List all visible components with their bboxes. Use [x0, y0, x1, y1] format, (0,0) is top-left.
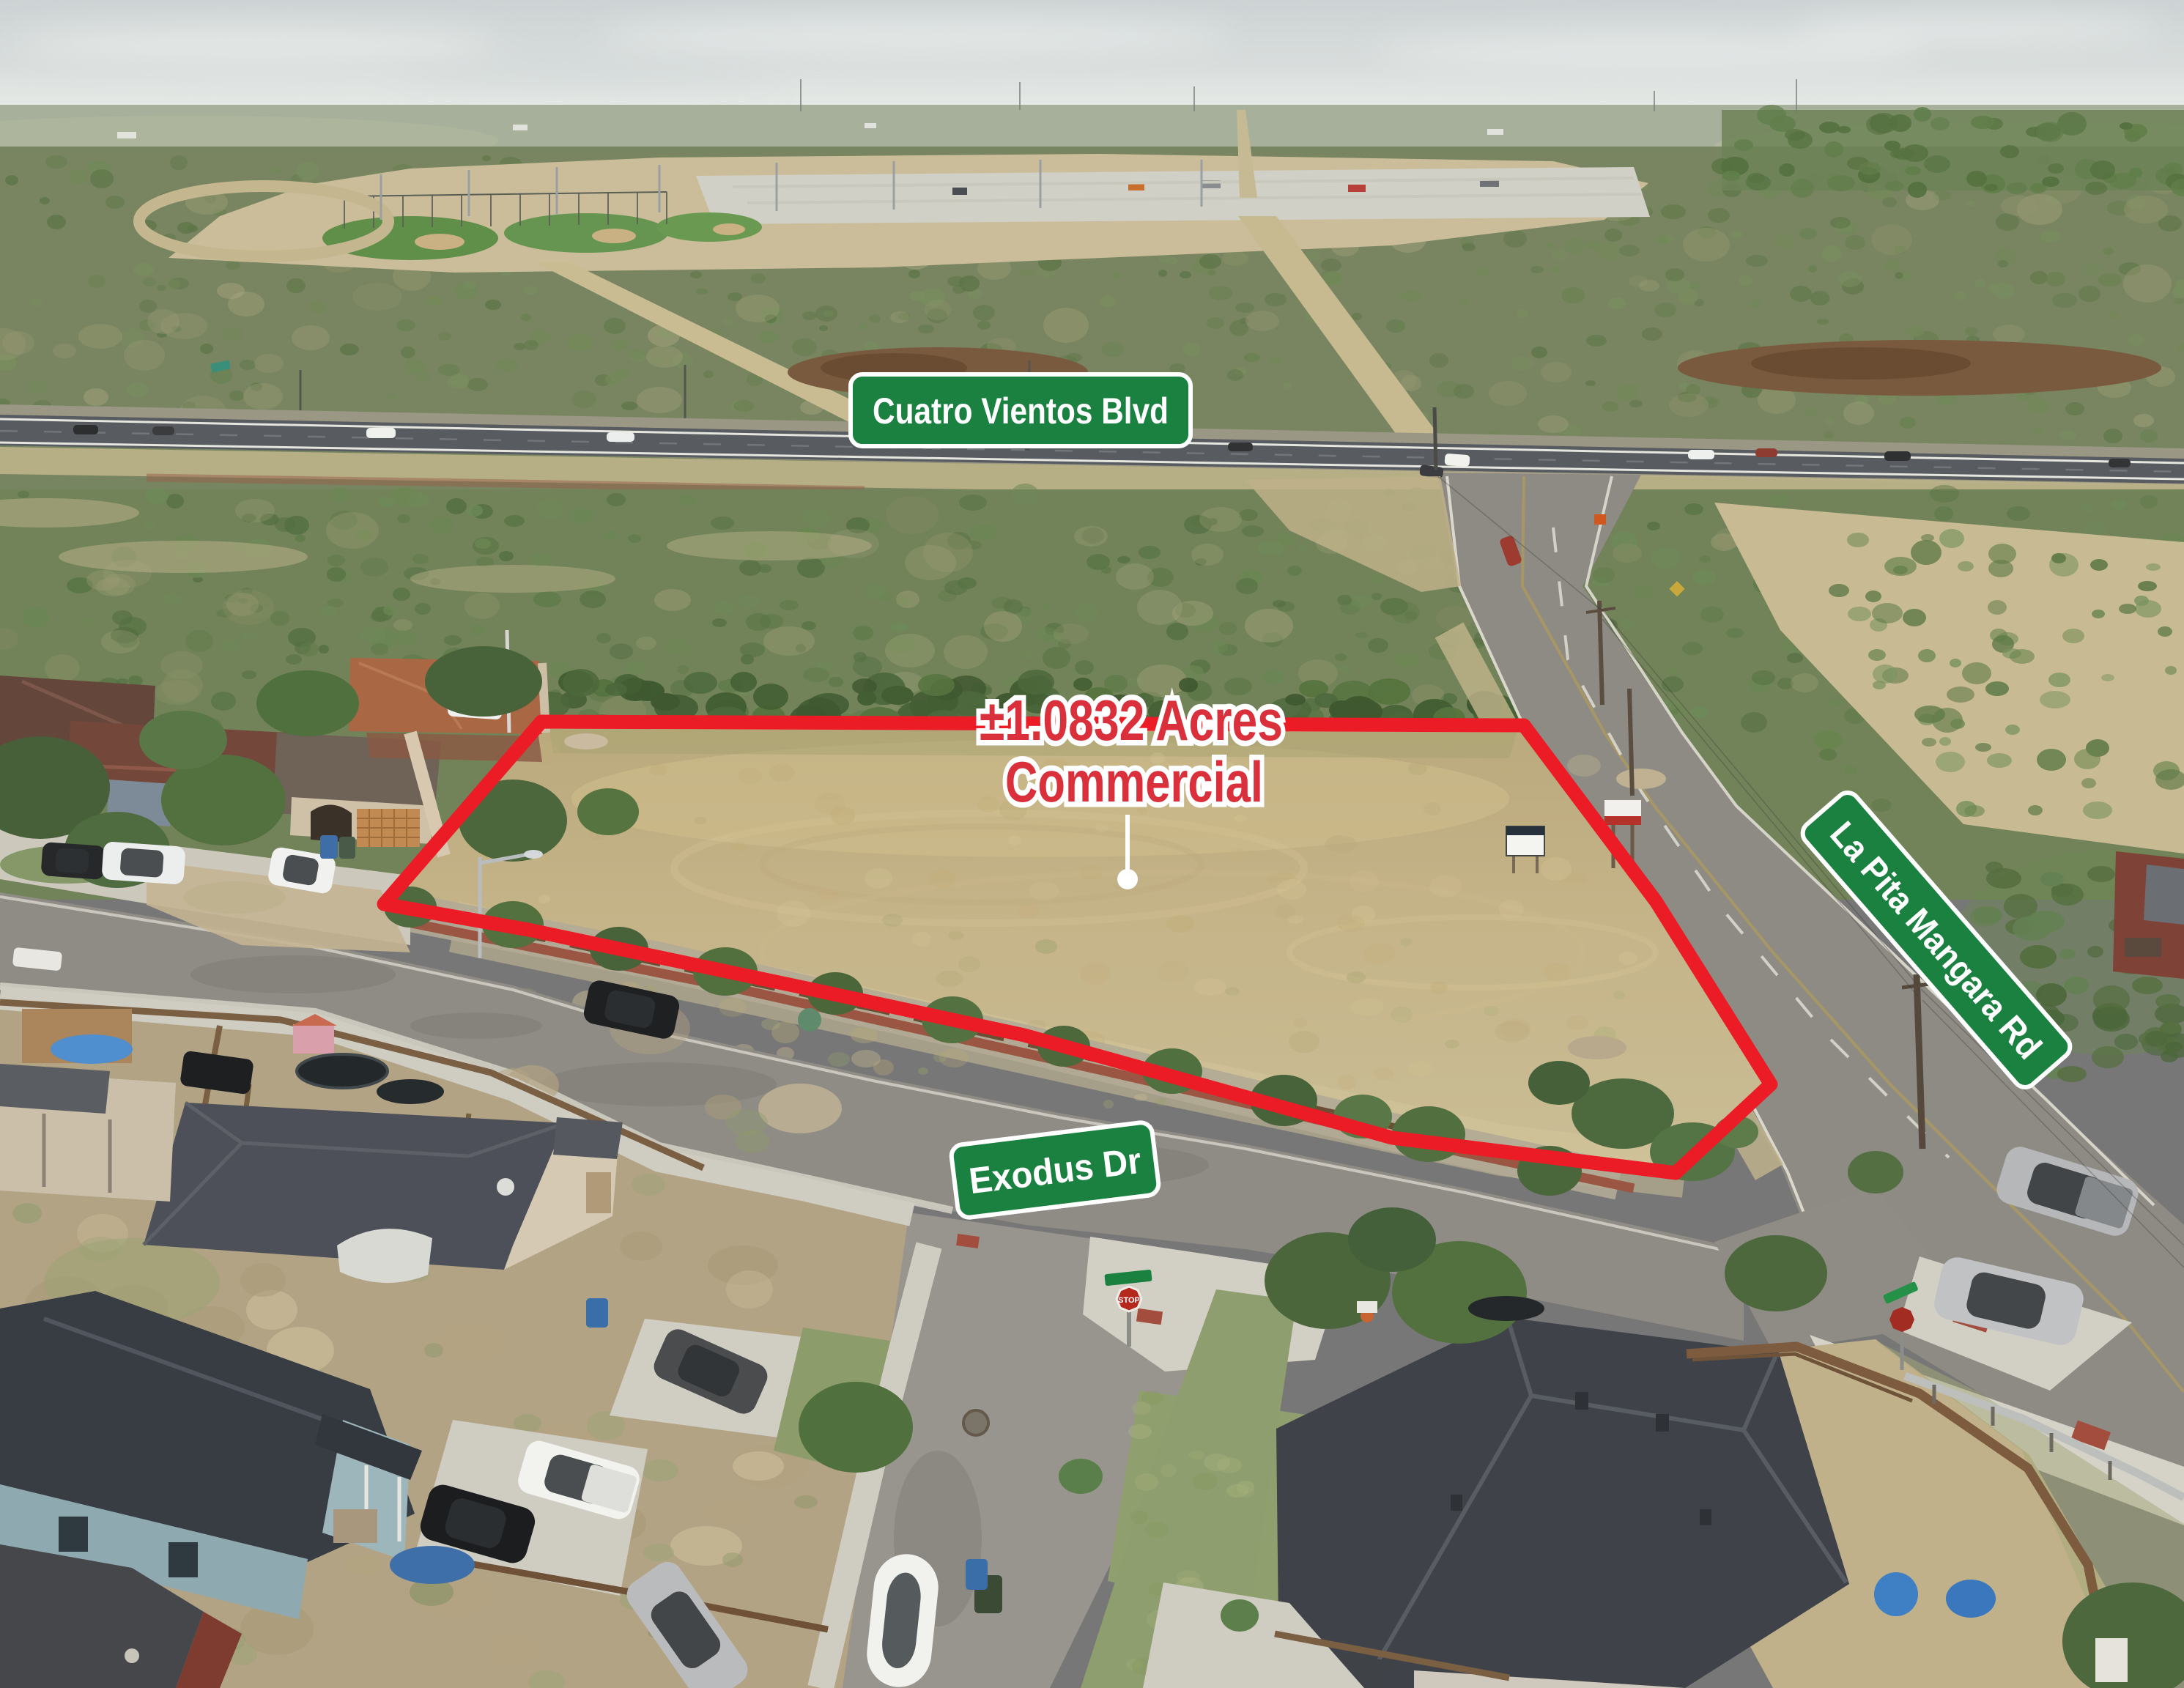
- svg-text:±1.0832 Acres: ±1.0832 Acres: [980, 688, 1283, 752]
- svg-text:Cuatro Vientos Blvd: Cuatro Vientos Blvd: [873, 390, 1169, 432]
- svg-text:STOP: STOP: [1118, 1296, 1140, 1305]
- svg-text:Commercial: Commercial: [1005, 749, 1263, 814]
